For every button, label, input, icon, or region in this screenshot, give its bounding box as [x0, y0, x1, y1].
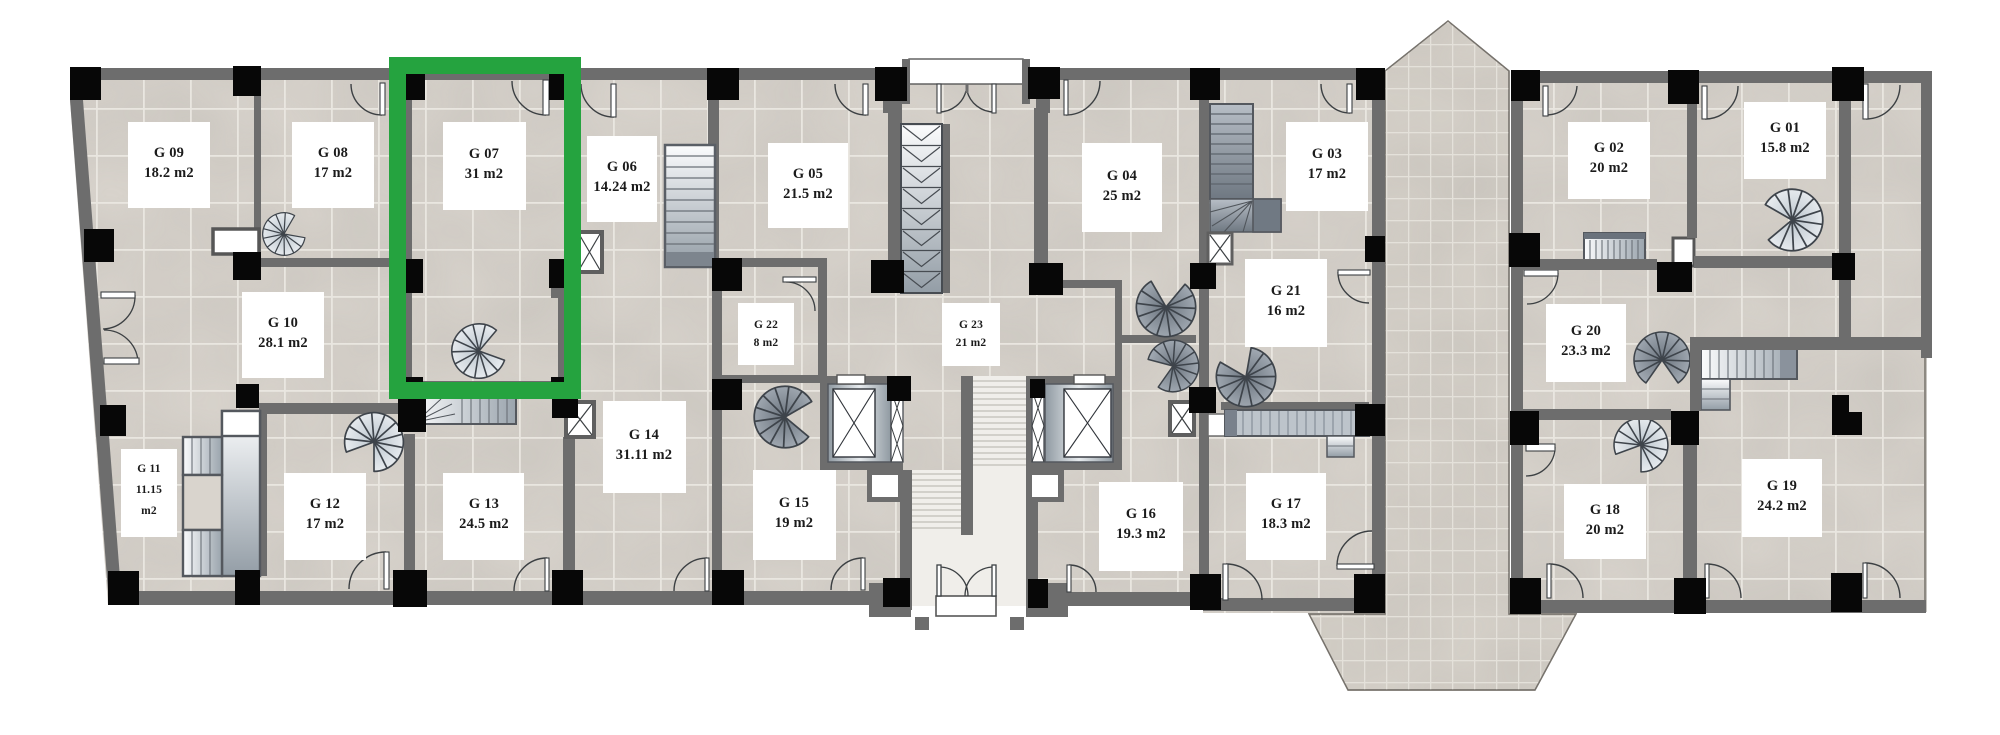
svg-text:18.2 m2: 18.2 m2 [144, 165, 194, 181]
svg-text:G 08: G 08 [318, 145, 348, 161]
svg-text:17 m2: 17 m2 [1308, 166, 1346, 182]
svg-text:31.11 m2: 31.11 m2 [616, 447, 672, 463]
svg-text:G 18: G 18 [1590, 502, 1620, 518]
svg-text:G 13: G 13 [469, 496, 499, 512]
svg-text:G 03: G 03 [1312, 146, 1342, 162]
svg-text:G 11: G 11 [137, 463, 161, 475]
svg-text:19.3 m2: 19.3 m2 [1116, 526, 1166, 542]
svg-text:21.5 m2: 21.5 m2 [783, 186, 833, 202]
svg-text:23.3 m2: 23.3 m2 [1561, 343, 1611, 359]
svg-text:G 20: G 20 [1571, 323, 1601, 339]
svg-text:15.8 m2: 15.8 m2 [1760, 140, 1810, 156]
svg-text:17 m2: 17 m2 [306, 516, 344, 532]
svg-text:24.5 m2: 24.5 m2 [459, 516, 509, 532]
svg-text:G 22: G 22 [754, 319, 778, 331]
svg-text:14.24 m2: 14.24 m2 [593, 179, 650, 195]
svg-text:G 16: G 16 [1126, 506, 1156, 522]
svg-text:24.2 m2: 24.2 m2 [1757, 498, 1807, 514]
svg-text:G 07: G 07 [469, 146, 499, 162]
svg-text:11.15: 11.15 [136, 484, 162, 496]
svg-text:18.3 m2: 18.3 m2 [1261, 516, 1311, 532]
svg-text:20 m2: 20 m2 [1586, 522, 1624, 538]
svg-text:G 10: G 10 [268, 315, 298, 331]
svg-text:G 02: G 02 [1594, 140, 1624, 156]
svg-text:G 21: G 21 [1271, 283, 1301, 299]
svg-text:G 06: G 06 [607, 159, 637, 175]
svg-text:20 m2: 20 m2 [1590, 160, 1628, 176]
svg-text:m2: m2 [141, 505, 157, 517]
svg-text:21 m2: 21 m2 [956, 337, 987, 349]
svg-text:8 m2: 8 m2 [754, 337, 779, 349]
svg-text:28.1 m2: 28.1 m2 [258, 335, 308, 351]
svg-text:G 05: G 05 [793, 166, 823, 182]
svg-text:G 17: G 17 [1271, 496, 1301, 512]
svg-text:16 m2: 16 m2 [1267, 303, 1305, 319]
svg-text:31 m2: 31 m2 [465, 166, 503, 182]
svg-text:G 12: G 12 [310, 496, 340, 512]
svg-text:G 09: G 09 [154, 145, 184, 161]
svg-text:G 01: G 01 [1770, 120, 1800, 136]
svg-text:25 m2: 25 m2 [1103, 188, 1141, 204]
svg-text:17 m2: 17 m2 [314, 165, 352, 181]
svg-text:G 14: G 14 [629, 427, 659, 443]
svg-text:G 23: G 23 [959, 319, 983, 331]
svg-text:G 19: G 19 [1767, 478, 1797, 494]
svg-text:G 04: G 04 [1107, 168, 1137, 184]
svg-text:19 m2: 19 m2 [775, 515, 813, 531]
svg-text:G 15: G 15 [779, 495, 809, 511]
